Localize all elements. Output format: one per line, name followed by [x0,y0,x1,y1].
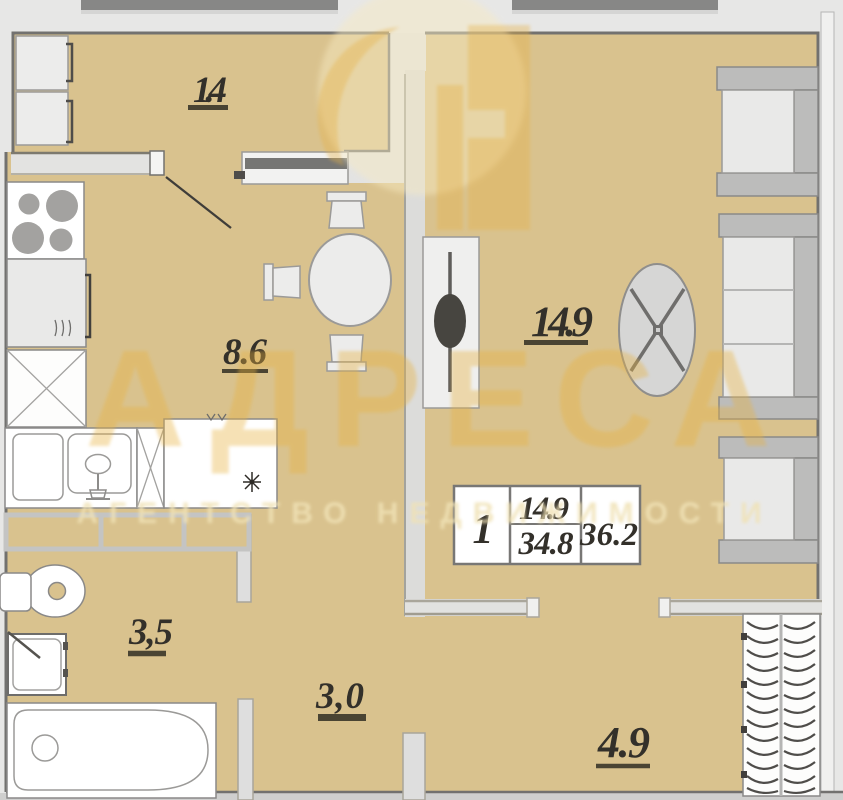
svg-text:4.9: 4.9 [597,718,650,767]
svg-text:3,0: 3,0 [315,676,364,717]
svg-text:1.4: 1.4 [193,70,227,111]
svg-text:АГЕНТСТВО НЕДВИЖИМОСТИ: АГЕНТСТВО НЕДВИЖИМОСТИ [77,497,762,530]
svg-text:3,5: 3,5 [128,612,173,653]
svg-text:34.8: 34.8 [518,526,574,562]
